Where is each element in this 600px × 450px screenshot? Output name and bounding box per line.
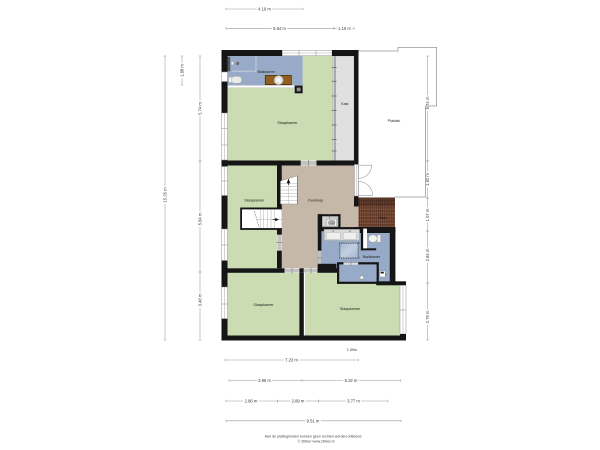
svg-text:1.07 m: 1.07 m	[425, 208, 430, 221]
svg-text:Badkamer: Badkamer	[363, 255, 381, 259]
svg-text:5.74 m: 5.74 m	[425, 96, 430, 109]
svg-text:1.59m: 1.59m	[347, 348, 358, 352]
svg-text:5.32 m: 5.32 m	[345, 378, 358, 383]
svg-text:5.74 m: 5.74 m	[197, 102, 202, 115]
svg-text:3.96 m: 3.96 m	[258, 378, 271, 383]
svg-text:9.51 m: 9.51 m	[307, 418, 320, 423]
svg-text:5.64 m: 5.64 m	[273, 26, 286, 31]
svg-text:Kast: Kast	[379, 216, 386, 220]
svg-text:Aan de plattegronden kunnen ge: Aan de plattegronden kunnen geen rechten…	[265, 435, 362, 439]
svg-text:5.84 m: 5.84 m	[197, 212, 202, 225]
svg-text:7.23 m: 7.23 m	[285, 357, 298, 362]
svg-text:Slaapkamer: Slaapkamer	[253, 303, 274, 307]
svg-text:2.86 m: 2.86 m	[245, 398, 258, 403]
svg-text:3.77 m: 3.77 m	[347, 398, 360, 403]
svg-text:4.19 m: 4.19 m	[258, 6, 271, 11]
svg-text:1.88 m: 1.88 m	[179, 64, 184, 77]
svg-text:Slaapkamer: Slaapkamer	[340, 307, 361, 311]
svg-text:Badkamer: Badkamer	[258, 70, 276, 74]
svg-text:2.79 m: 2.79 m	[425, 310, 430, 323]
svg-text:Slaapkamer: Slaapkamer	[277, 121, 298, 125]
svg-text:Platdak: Platdak	[388, 119, 401, 123]
svg-text:1.92 m: 1.92 m	[425, 173, 430, 186]
svg-text:Kast: Kast	[341, 102, 348, 106]
svg-text:Overloop: Overloop	[308, 199, 323, 203]
svg-text:Slaapkamer: Slaapkamer	[244, 199, 265, 203]
svg-text:3.48 m: 3.48 m	[197, 293, 202, 306]
svg-text:15.26 m: 15.26 m	[162, 187, 167, 203]
svg-text:© Zibber www.zibber.nl: © Zibber www.zibber.nl	[298, 439, 335, 443]
svg-text:2.84 m: 2.84 m	[425, 248, 430, 261]
svg-text:2.89 m: 2.89 m	[292, 398, 305, 403]
svg-text:1.10 m: 1.10 m	[338, 26, 351, 31]
